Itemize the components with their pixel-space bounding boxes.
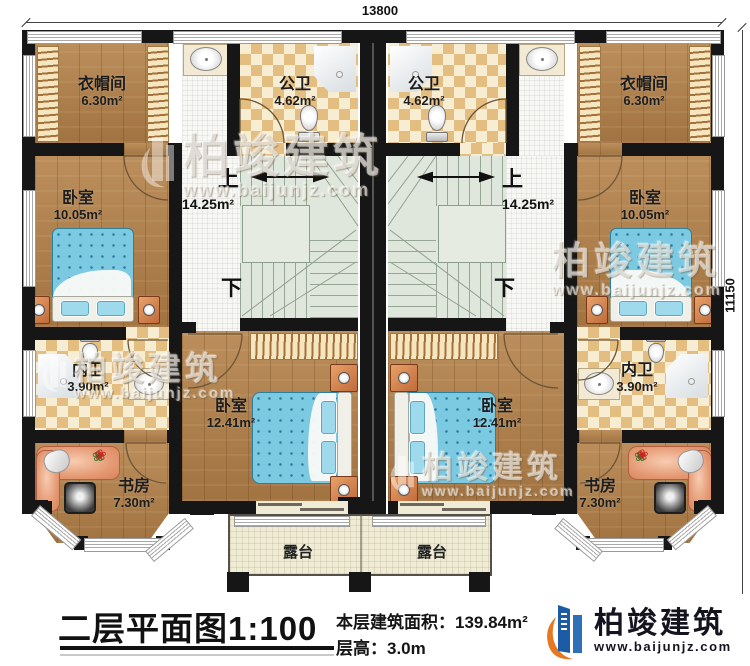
sliding-door-icon <box>258 503 302 506</box>
wall <box>169 143 182 335</box>
wall <box>182 322 196 333</box>
sink-icon <box>190 47 222 71</box>
wall <box>550 322 564 333</box>
party-wall-seam <box>372 43 374 501</box>
room-label-cloakroom-left: 衣帽间6.30m² <box>52 76 152 108</box>
window <box>606 31 721 44</box>
dimension-height-line <box>742 30 743 594</box>
nightstand-icon <box>390 476 418 504</box>
room-label-bath-left: 公卫4.62m² <box>245 76 345 108</box>
doorway <box>126 327 169 340</box>
nightstand-icon <box>330 364 358 392</box>
floor-height-info: 层高：3.0m <box>336 634 426 659</box>
plan-scale: 1:100 <box>228 610 317 647</box>
wall <box>388 318 506 331</box>
computer-icon <box>654 482 686 514</box>
room-label-cloakroom-right: 衣帽间6.30m² <box>594 76 694 108</box>
room-label-bedroom-right: 卧室10.05m² <box>595 190 695 222</box>
room-label-study-right: 书房7.30m² <box>550 478 650 510</box>
nightstand-icon <box>390 364 418 392</box>
doorway <box>578 143 622 156</box>
wall <box>240 318 358 331</box>
terrace-railing <box>234 516 350 527</box>
wall <box>190 501 214 515</box>
wall <box>506 43 519 156</box>
window <box>173 31 342 44</box>
room-label-midbedroom-left: 卧室12.41m² <box>181 398 281 430</box>
sliding-door-icon <box>442 508 486 511</box>
brand-logo-icon <box>540 601 586 661</box>
terrace-railing <box>372 516 486 527</box>
sink-icon <box>134 372 164 395</box>
stairs-left <box>240 156 358 318</box>
room-label-bedroom-left: 卧室10.05m² <box>28 190 128 222</box>
sink-icon <box>526 47 558 71</box>
hall-area-right: 14.25m² <box>480 196 576 212</box>
dimension-width-label: 13800 <box>345 3 415 18</box>
doorway <box>182 143 227 156</box>
brand-url: www.baijunjz.com <box>594 639 732 654</box>
bed-icon <box>610 228 692 322</box>
terrace-divider <box>360 514 362 572</box>
stairs-right <box>388 156 506 318</box>
doorway <box>460 143 506 156</box>
room-label-ensuite-left: 内卫3.90m² <box>38 362 138 394</box>
sliding-door-icon <box>300 508 344 511</box>
plant-icon: ❀ <box>94 446 107 464</box>
wall <box>564 143 577 335</box>
terrace-pillar <box>227 572 249 592</box>
doorway <box>124 430 167 443</box>
hall-area-left: 14.25m² <box>160 196 256 212</box>
toilet-icon <box>424 104 450 142</box>
brand-logo: 柏竣建筑 www.baijunjz.com <box>540 601 732 661</box>
plan-title-text: 二层平面图 <box>58 610 228 647</box>
doorway <box>124 143 168 156</box>
floor-plan: 13800 11150 <box>0 0 750 666</box>
closet-icon <box>250 333 358 360</box>
window <box>406 31 575 44</box>
terrace-label-right: 露台 <box>397 541 467 562</box>
window <box>27 31 142 44</box>
window <box>712 190 725 287</box>
dimension-width-line <box>26 22 722 23</box>
toilet-icon <box>296 104 322 142</box>
title-underline-shadow <box>60 654 334 656</box>
window <box>23 350 36 417</box>
room-label-bath-right: 公卫4.62m² <box>374 76 474 108</box>
terrace-pillar <box>469 572 490 592</box>
terrace-pillar <box>349 572 371 592</box>
room-label-midbedroom-right: 卧室12.41m² <box>447 398 547 430</box>
doorway <box>579 430 622 443</box>
window <box>712 55 725 137</box>
doorway <box>519 143 564 156</box>
doorway <box>577 327 620 340</box>
floor-area-info: 本层建筑面积：139.84m² <box>336 608 528 633</box>
closet-icon <box>390 333 498 360</box>
room-label-study-left: 书房7.30m² <box>84 478 184 510</box>
sliding-door-icon <box>400 503 444 506</box>
wall <box>227 43 240 156</box>
stairs-up-label-right: 上 <box>502 163 523 193</box>
terrace-label-left: 露台 <box>263 541 333 562</box>
window <box>23 55 36 137</box>
plan-title: 二层平面图1:100 <box>58 602 317 650</box>
stairs-down-label-left: 下 <box>221 272 242 302</box>
room-label-ensuite-right: 内卫3.90m² <box>587 362 687 394</box>
brand-name: 柏竣建筑 <box>594 609 732 639</box>
stairs-down-label-right: 下 <box>494 272 515 302</box>
nightstand-icon <box>586 296 608 324</box>
stairs-up-label-left: 上 <box>218 163 239 193</box>
nightstand-icon <box>138 296 160 324</box>
window <box>712 350 725 417</box>
plant-icon: ❀ <box>636 446 649 464</box>
doorway <box>240 143 286 156</box>
bed-icon <box>52 228 134 322</box>
title-underline <box>60 646 334 650</box>
